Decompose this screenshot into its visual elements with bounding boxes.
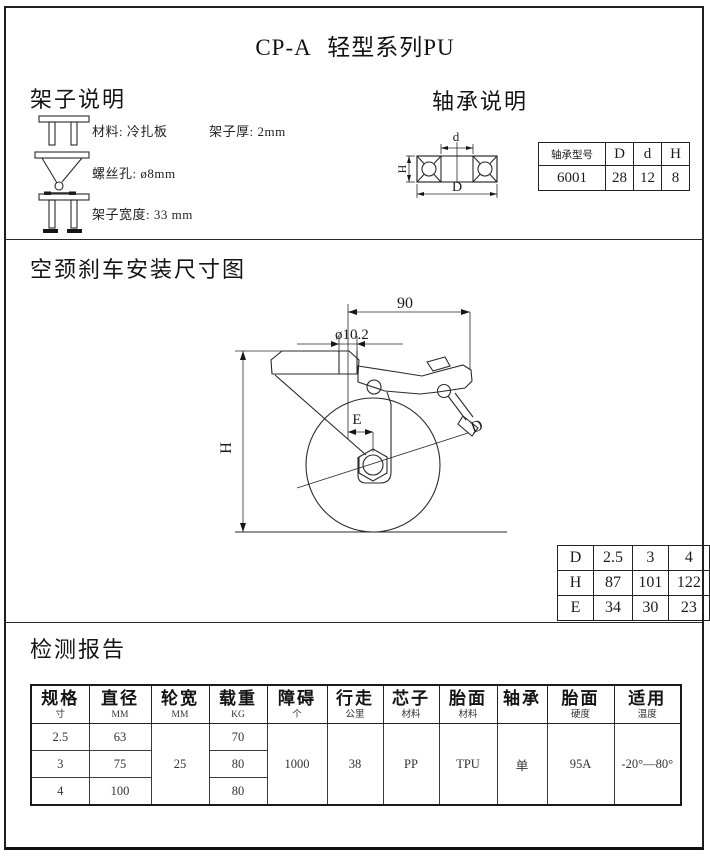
page-title: CP-A 轻型系列PU: [0, 28, 710, 62]
report-col-core: 芯子 材料: [383, 685, 439, 724]
report-col-obstacle: 障碍 个: [267, 685, 327, 724]
cell-spec: 3: [31, 751, 89, 778]
header-sub: MM: [152, 709, 209, 721]
dim-hole-label: ø10.2: [335, 327, 369, 343]
header-sub: 材料: [384, 709, 439, 721]
bearing-D-value: 28: [606, 166, 634, 191]
cell-diameter: 100: [89, 778, 151, 806]
dhe-row-E: E 34 30 23: [558, 596, 710, 621]
dhe-cell: 30: [632, 596, 668, 621]
dhe-cell: H: [558, 571, 594, 596]
cell-temperature: -20°—80°: [614, 724, 681, 806]
header-sub: 温度: [615, 709, 681, 721]
header-main: 胎面: [548, 689, 614, 709]
bearing-d-value: 12: [634, 166, 662, 191]
cell-hardness: 95A: [547, 724, 614, 806]
header-sub: 公里: [328, 709, 383, 721]
bearing-table-value-row: 6001 28 12 8: [539, 166, 690, 191]
header-main: 行走: [328, 689, 383, 709]
bearing-dim-H-label: H: [395, 164, 409, 173]
screw-hole-text: 螺丝孔: ø8mm: [92, 166, 176, 181]
bracket-width-label: 架子宽度: 33 mm: [92, 204, 193, 223]
dhe-cell: 2.5: [594, 546, 633, 571]
report-section-heading: 检测报告: [30, 632, 126, 664]
report-header-row: 规格 寸 直径 MM 轮宽 MM 载重 KG 障碍 个 行走 公里: [31, 685, 681, 724]
report-col-spec: 规格 寸: [31, 685, 89, 724]
cell-load: 80: [209, 751, 267, 778]
dhe-size-table: D 2.5 3 4 H 87 101 122 E 34 30 23: [557, 545, 710, 621]
report-col-hardness: 胎面 硬度: [547, 685, 614, 724]
section-divider-top: [5, 239, 704, 240]
report-col-bearing: 轴承: [497, 685, 547, 724]
header-sub: 个: [268, 709, 327, 721]
spec-sheet-page: CP-A 轻型系列PU 架子说明 材料: 冷扎板 架子厚: 2mm 螺丝孔: ø…: [0, 0, 710, 865]
header-main: 规格: [32, 689, 89, 709]
report-col-load: 载重 KG: [209, 685, 267, 724]
bearing-H-value: 8: [662, 166, 690, 191]
bearing-model-value: 6001: [539, 166, 606, 191]
bracket-width-text: 架子宽度: 33 mm: [92, 207, 193, 222]
screw-hole-bracket-icon: [34, 150, 94, 198]
dhe-cell: 87: [594, 571, 633, 596]
cell-load: 80: [209, 778, 267, 806]
header-sub: [498, 709, 547, 721]
bracket-width-icon: [38, 192, 92, 238]
report-col-temperature: 适用 温度: [614, 685, 681, 724]
bearing-dim-D-label: D: [452, 180, 462, 195]
header-sub: KG: [210, 709, 267, 721]
bearing-table: 轴承型号 D d H 6001 28 12 8: [538, 142, 690, 191]
section-divider-bottom: [5, 622, 704, 623]
dim-E-label: E: [352, 412, 361, 428]
cell-diameter: 75: [89, 751, 151, 778]
drawing-section-heading: 空颈刹车安装尺寸图: [30, 252, 246, 284]
cell-spec: 2.5: [31, 724, 89, 751]
bearing-drawing: d D H: [403, 126, 513, 206]
header-main: 直径: [90, 689, 151, 709]
cell-obstacle: 1000: [267, 724, 327, 806]
report-row-1: 2.5 63 25 70 1000 38 PP TPU 单 95A -20°—8…: [31, 724, 681, 751]
header-main: 胎面: [440, 689, 497, 709]
bearing-col-d: d: [634, 143, 662, 166]
fork-bracket-icon: [38, 113, 92, 149]
dhe-cell: 101: [632, 571, 668, 596]
dhe-row-H: H 87 101 122: [558, 571, 710, 596]
dim-H-label: H: [218, 442, 235, 454]
dim-90-label: 90: [397, 295, 413, 312]
cell-bearing: 单: [497, 724, 547, 806]
header-sub: 寸: [32, 709, 89, 721]
caster-drawing: H 90 ø10.2: [135, 292, 515, 544]
header-main: 轴承: [498, 689, 547, 709]
material-text: 材料: 冷扎板: [92, 124, 167, 139]
header-main: 芯子: [384, 689, 439, 709]
cell-diameter: 63: [89, 724, 151, 751]
dhe-cell: 122: [668, 571, 709, 596]
report-col-diameter: 直径 MM: [89, 685, 151, 724]
dhe-row-D: D 2.5 3 4: [558, 546, 710, 571]
bearing-col-H: H: [662, 143, 690, 166]
header-sub: MM: [90, 709, 151, 721]
header-sub: 硬度: [548, 709, 614, 721]
screw-hole-label: 螺丝孔: ø8mm: [92, 163, 176, 182]
header-main: 适用: [615, 689, 681, 709]
header-sub: 材料: [440, 709, 497, 721]
dhe-cell: 34: [594, 596, 633, 621]
bearing-model-header: 轴承型号: [539, 143, 606, 166]
cell-distance: 38: [327, 724, 383, 806]
frame-material-label: 材料: 冷扎板 架子厚: 2mm: [92, 121, 286, 140]
cell-spec: 4: [31, 778, 89, 806]
bearing-dim-d-label: d: [453, 129, 460, 144]
thickness-text: 架子厚: 2mm: [209, 124, 286, 139]
bearing-section-heading: 轴承说明: [432, 84, 528, 116]
frame-section-heading: 架子说明: [30, 82, 126, 114]
bearing-table-header-row: 轴承型号 D d H: [539, 143, 690, 166]
cell-load: 70: [209, 724, 267, 751]
report-col-wheel-width: 轮宽 MM: [151, 685, 209, 724]
dim-D-label: D: [469, 417, 486, 437]
bearing-col-D: D: [606, 143, 634, 166]
dhe-cell: 3: [632, 546, 668, 571]
dhe-cell: D: [558, 546, 594, 571]
header-main: 载重: [210, 689, 267, 709]
test-report-table: 规格 寸 直径 MM 轮宽 MM 载重 KG 障碍 个 行走 公里: [30, 684, 682, 806]
dhe-cell: 23: [668, 596, 709, 621]
header-main: 轮宽: [152, 689, 209, 709]
dhe-cell: 4: [668, 546, 709, 571]
cell-tread-material: TPU: [439, 724, 497, 806]
cell-core-material: PP: [383, 724, 439, 806]
cell-wheel-width: 25: [151, 724, 209, 806]
report-col-distance: 行走 公里: [327, 685, 383, 724]
dhe-cell: E: [558, 596, 594, 621]
header-main: 障碍: [268, 689, 327, 709]
report-col-tread-material: 胎面 材料: [439, 685, 497, 724]
